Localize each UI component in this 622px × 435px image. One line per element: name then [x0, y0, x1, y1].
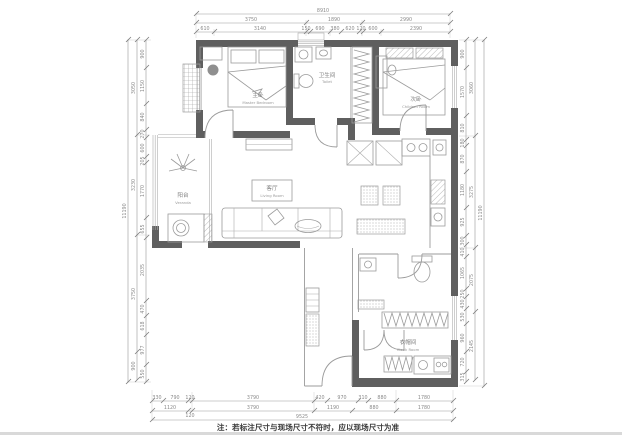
room-label-living-cn: 客厅 [266, 184, 278, 192]
dim: 610 [200, 26, 209, 32]
dim: 655 [140, 224, 146, 233]
dim: 120 [185, 395, 194, 401]
dim: 900 [140, 49, 146, 58]
dim: 550 [140, 369, 146, 378]
window-balcony-left [153, 135, 157, 230]
toilet [299, 75, 313, 88]
plant [169, 154, 197, 171]
dining-chair [383, 186, 400, 205]
entry-door [322, 356, 352, 386]
dim: 1180 [460, 184, 466, 196]
dim: 3050 [131, 82, 137, 94]
floorplan-drawing: 主卧 Master Bedroom 卫生间 Toilet 次卧 Children… [0, 0, 622, 435]
dim: 925 [460, 217, 466, 226]
dim: 2990 [400, 17, 412, 23]
room-label-balcony-cn: 阳台 [177, 191, 189, 199]
room-living: 客厅 Living Room [222, 139, 342, 238]
closet-strip [351, 47, 373, 123]
door-toilet-room [398, 254, 422, 278]
dim: 620 [345, 26, 354, 32]
dimensions-bottom: 330 790 120 3790 420 970 310 880 1780 11… [150, 390, 456, 422]
room-label-balcony-en: Veranda [175, 200, 191, 205]
dim: 1065 [460, 267, 466, 279]
dim: 205 [140, 156, 146, 165]
wardrobe-band [384, 313, 448, 326]
dining-table [357, 219, 405, 234]
dim: 2035 [140, 264, 146, 276]
low-wall [358, 300, 384, 309]
headboard-cabinet [386, 48, 413, 58]
dim: 180 [460, 138, 466, 147]
room-bathroom: 卫生间 Toilet [294, 47, 337, 147]
dim: 430 [460, 299, 466, 308]
hallway [305, 248, 353, 386]
dimensions-right: 900 1570 810 180 870 1180 925 300 410 10… [459, 37, 487, 388]
dim: 810 [460, 123, 466, 132]
dim: 1190 [327, 405, 339, 411]
dimensions-left: 900 1150 840 270 600 205 1770 655 2035 4… [122, 37, 151, 384]
dim: 330 [152, 395, 161, 401]
dim: 3790 [247, 405, 259, 411]
dim: 600 [140, 143, 146, 152]
dim: 600 [368, 26, 377, 32]
dim: 1890 [328, 17, 340, 23]
wardrobe-hangers [354, 50, 369, 122]
dim: 270 [140, 129, 146, 138]
dim: 1780 [418, 405, 430, 411]
gas-stove [402, 139, 430, 156]
stool [208, 65, 219, 76]
shoe-cabinet [306, 314, 319, 346]
oven [431, 180, 445, 204]
room-label-bath-en: Toilet [321, 79, 332, 84]
dim-bottom-total: 9525 [296, 414, 308, 420]
dim: 3230 [131, 179, 137, 191]
door-master [205, 110, 233, 138]
dim: 3060 [469, 82, 475, 94]
dim: 380 [330, 26, 339, 32]
dim: 410 [460, 247, 466, 256]
dim: 1150 [140, 80, 146, 92]
dim: 900 [460, 49, 466, 58]
window-balcony-top [158, 135, 196, 138]
dim: 618 [140, 321, 146, 330]
dim: 3790 [247, 395, 259, 401]
dim: 1120 [164, 405, 176, 411]
dim: 1780 [418, 395, 430, 401]
headboard-cabinet [416, 48, 443, 58]
cabinet [204, 214, 212, 242]
door-bathroom [315, 125, 337, 147]
dining-chair [361, 186, 378, 205]
dim: 2075 [469, 274, 475, 286]
sofa-pillow-oval [295, 220, 321, 233]
dim: 470 [140, 304, 146, 313]
area-dining-kitchen [347, 139, 446, 248]
floorplan-page: 主卧 Master Bedroom 卫生间 Toilet 次卧 Children… [0, 0, 622, 435]
room-balcony: 阳台 Veranda [168, 154, 212, 242]
dimensions-top: 8910 3750 1890 2990 610 3140 150 690 380… [194, 8, 453, 38]
window-vent-box [298, 33, 324, 40]
dim: 1770 [140, 185, 146, 197]
sink2 [360, 258, 376, 271]
dim: 530 [460, 312, 466, 321]
room-label-master-cn: 主卧 [252, 91, 264, 99]
dim: 970 [337, 395, 346, 401]
radiator [183, 64, 200, 112]
room-label-second-cn: 次卧 [410, 95, 422, 103]
dim-top-total: 8910 [317, 8, 329, 14]
dim: 900 [131, 361, 137, 370]
room-children-bedroom: 次卧 Children Room [376, 48, 445, 131]
wardrobe-small [385, 357, 413, 370]
dim: 250 [460, 289, 466, 298]
dim: 3750 [245, 17, 257, 23]
dim-left-total: 11190 [122, 203, 128, 218]
dim: 420 [315, 395, 324, 401]
dim: 150 [301, 26, 310, 32]
room-label-cloak-cn: 衣帽间 [400, 338, 417, 346]
dim: 2145 [469, 340, 475, 352]
kitchen-sink [433, 140, 446, 155]
dim: 3750 [131, 288, 137, 300]
dim: 3275 [469, 186, 475, 198]
sofa [222, 208, 342, 238]
microwave [431, 208, 445, 226]
dim: 880 [377, 395, 386, 401]
dim: 300 [460, 236, 466, 245]
room-label-master-en: Master Bedroom [242, 100, 274, 105]
dim: 690 [315, 26, 324, 32]
dim: 880 [369, 405, 378, 411]
room-label-living-en: Living Room [260, 193, 284, 198]
kitchen-counter [414, 356, 451, 374]
sofa-pillow-diamond [268, 209, 284, 225]
note-text: 注：若标注尺寸与现场尺寸不符时，应以现场尺寸为准 [217, 422, 400, 432]
dim: 120 [356, 26, 365, 32]
dim: 2390 [410, 26, 422, 32]
room-cloak: 衣帽间 Cloak Room [358, 254, 451, 374]
washing-machine [295, 47, 312, 62]
dim: 977 [140, 345, 146, 354]
dim: 3140 [254, 26, 266, 32]
dim: 720 [460, 357, 466, 366]
sink [316, 47, 331, 59]
dim: 310 [358, 395, 367, 401]
dim-right-total: 11190 [478, 205, 484, 220]
dim: 315 [460, 372, 466, 381]
toilet-tank [294, 74, 299, 88]
room-label-cloak-en: Cloak Room [397, 347, 420, 352]
dim: 840 [140, 112, 146, 121]
dim: 1570 [460, 86, 466, 98]
dim: 790 [170, 395, 179, 401]
room-label-bath-cn: 卫生间 [319, 71, 336, 79]
nightstand [200, 47, 222, 60]
dim: 120 [185, 413, 194, 419]
room-label-second-en: Children Room [402, 104, 430, 109]
dim: 870 [460, 154, 466, 163]
dim: 960 [460, 333, 466, 342]
cloak-door-left [364, 330, 384, 350]
